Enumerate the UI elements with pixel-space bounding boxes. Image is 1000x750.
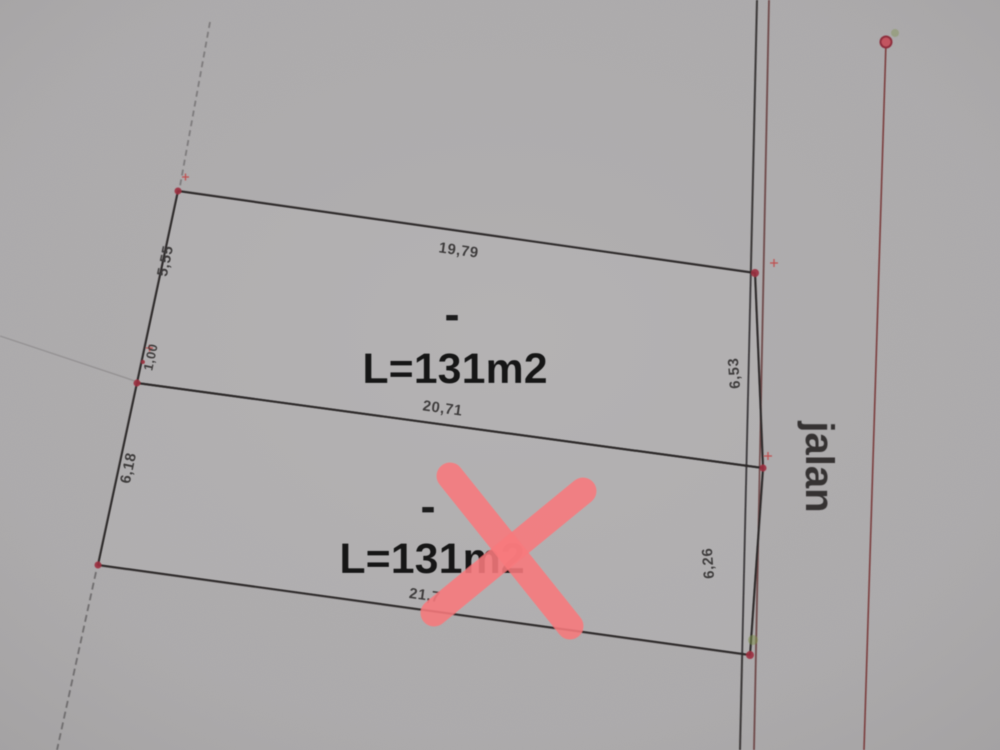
plot2-dim-right: 6,26 bbox=[699, 547, 718, 579]
survey-drawing: 19,79 5,55 1,00 6,53 20,71 6,18 6,26 21,… bbox=[0, 0, 1000, 750]
corner-dot bbox=[760, 465, 767, 472]
corner-dot bbox=[134, 380, 141, 387]
corner-dot bbox=[746, 651, 754, 659]
corner-dot bbox=[751, 269, 759, 277]
plot1-area-label: L=131m2 bbox=[362, 345, 547, 393]
plot2-dash-label: - bbox=[420, 480, 435, 532]
corner-dot bbox=[95, 562, 102, 569]
plot1-dash-label: - bbox=[444, 288, 459, 340]
survey-point-marker bbox=[881, 37, 892, 48]
road-label: jalan bbox=[797, 420, 841, 512]
plot1-dim-right: 6,53 bbox=[725, 357, 744, 389]
survey-mark-smudge-top bbox=[891, 29, 899, 37]
survey-sketch: 19,79 5,55 1,00 6,53 20,71 6,18 6,26 21,… bbox=[0, 0, 1000, 750]
corner-dot bbox=[175, 188, 182, 195]
survey-mark-smudge-corner bbox=[748, 635, 758, 645]
